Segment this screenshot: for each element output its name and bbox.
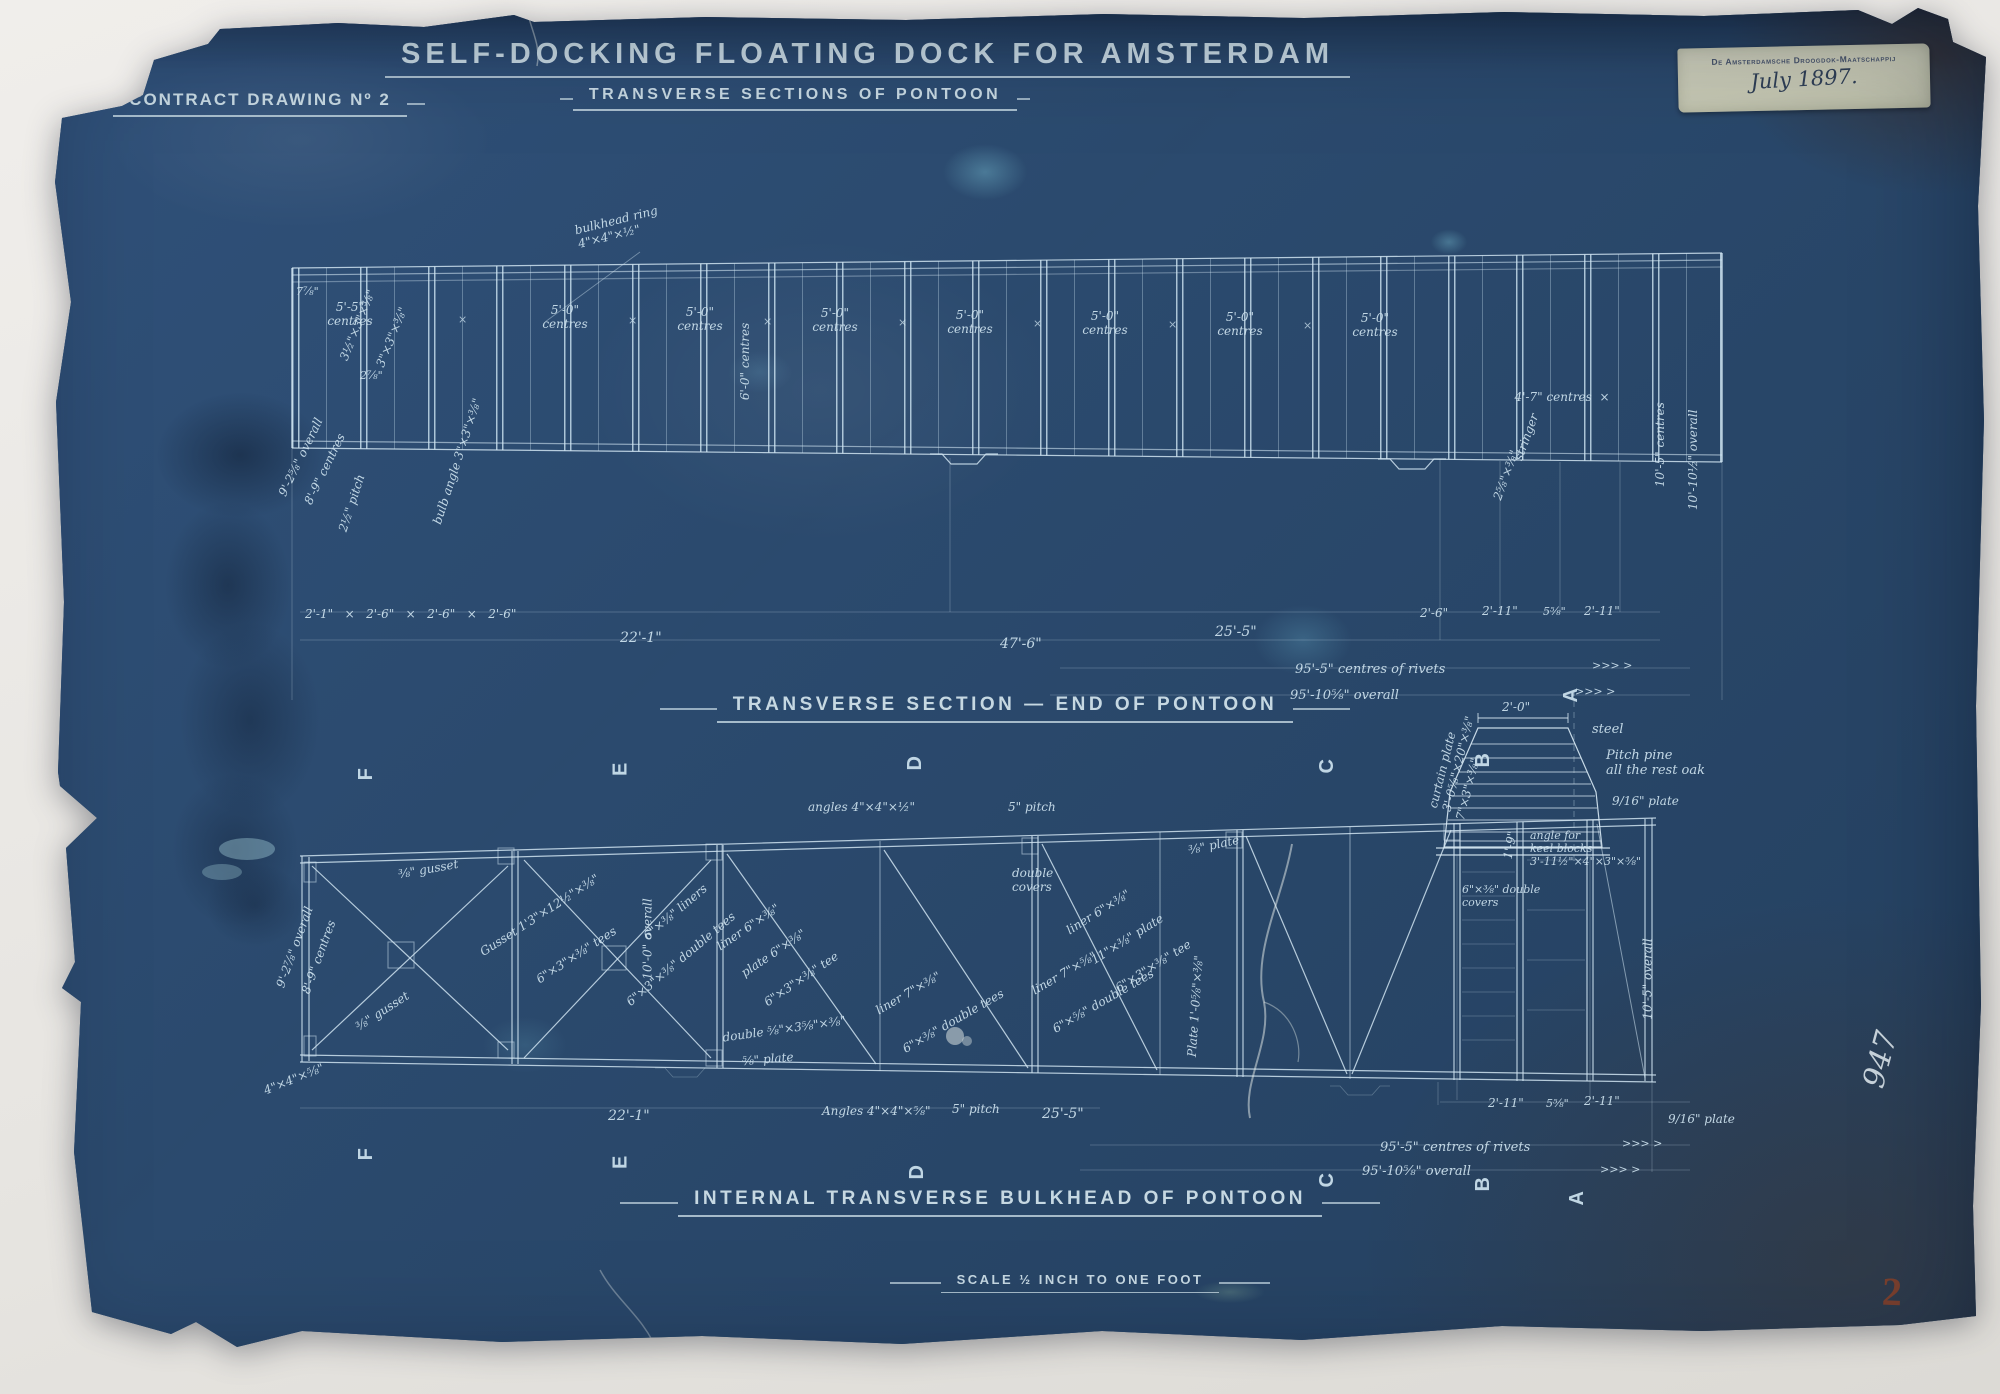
dim-row: 2'-1" × 2'-6" × 2'-6" × 2'-6" bbox=[305, 607, 516, 621]
dim-label: 25'-5" bbox=[1215, 624, 1257, 641]
dim-label: 2'-11" bbox=[1488, 1096, 1524, 1110]
rule-line bbox=[1017, 98, 1030, 100]
bay-spacing-label: 5'-0" centres bbox=[527, 303, 603, 331]
bay-spacing-label: 5'-0" centres bbox=[1067, 309, 1143, 337]
note-plate: Plate 1'-0⅝"×⅜" bbox=[1185, 937, 1207, 1058]
section-letter: E bbox=[609, 762, 633, 776]
photo-background: CONTRACT DRAWING Nº 2 SELF-DOCKING FLOAT… bbox=[0, 0, 2000, 1394]
note-plate: ⅜" plate bbox=[1187, 833, 1240, 858]
section-letter: C bbox=[1316, 758, 1340, 773]
bay-spacing-label: 5'-5" centres bbox=[312, 300, 388, 328]
note-tee: 6"×⅜" double tees bbox=[900, 986, 1006, 1055]
section-letter: C bbox=[1316, 1172, 1340, 1187]
note-liner: liner 7"×⅝" bbox=[1029, 949, 1099, 997]
stamp-number: 2 bbox=[1881, 1268, 1903, 1316]
archive-number: 947 bbox=[1856, 1027, 1905, 1091]
bay-spacing-label: 5'-0" centres bbox=[932, 308, 1008, 336]
note-dim: 1'-9" bbox=[1501, 830, 1520, 860]
note-liner: liner 6"×⅜" bbox=[714, 901, 782, 953]
note-plate: curtain plate 3'-0⅝"×20"×⅜" bbox=[1426, 699, 1480, 813]
arrow-marks: >>> > bbox=[1575, 686, 1615, 699]
drawing-subtitle: TRANSVERSE SECTIONS OF PONTOON bbox=[560, 86, 1030, 111]
bottom-section-heading-text: INTERNAL TRANSVERSE BULKHEAD OF PONTOON bbox=[678, 1188, 1322, 1217]
blueprint-sheet-wrap: CONTRACT DRAWING Nº 2 SELF-DOCKING FLOAT… bbox=[0, 0, 2000, 1394]
note-liner: liner 6"×⅜" bbox=[1064, 887, 1133, 937]
scale-note: SCALE ½ INCH TO ONE FOOT bbox=[890, 1272, 1270, 1293]
section-letter: A bbox=[1566, 1190, 1590, 1205]
note-angle: bulb angle 3"×3"×⅜" bbox=[430, 398, 484, 526]
cross-mark: × bbox=[1033, 318, 1042, 331]
note-angle: angles 4"×4"×½" bbox=[808, 800, 915, 814]
note-gusset: ⅜" gusset bbox=[353, 989, 412, 1034]
note-tee: 6"×⅝" double tees bbox=[1050, 966, 1156, 1035]
dim-label: 95'-5" centres of rivets bbox=[1380, 1140, 1530, 1155]
note-centres: 10'-5" centres bbox=[1653, 387, 1667, 487]
scale-note-text: SCALE ½ INCH TO ONE FOOT bbox=[941, 1272, 1220, 1293]
note-centres: 8'-9" centres bbox=[301, 431, 348, 507]
note-liner: 6"×⅜" liners bbox=[641, 881, 710, 942]
note-pitch: 2½" pitch bbox=[336, 473, 368, 534]
dim-label: 5" pitch bbox=[952, 1102, 1000, 1116]
cross-mark: × bbox=[898, 317, 907, 330]
contract-drawing-label: CONTRACT DRAWING Nº 2 bbox=[95, 90, 425, 117]
dim-label: Angles 4"×4"×⅝" bbox=[822, 1104, 931, 1118]
note-liner: liner 7"×⅜" bbox=[873, 969, 943, 1017]
cross-mark: × bbox=[628, 315, 637, 328]
bottom-section-heading: INTERNAL TRANSVERSE BULKHEAD OF PONTOON bbox=[620, 1188, 1380, 1217]
note-overall: 9'-2⅞" overall bbox=[273, 905, 315, 990]
section-letter: D bbox=[906, 1164, 930, 1179]
cross-mark: × bbox=[458, 314, 467, 327]
note-angle: 3"×3"×⅜" bbox=[373, 305, 410, 369]
note-bulkhead-ring: bulkhead ring 4"×4"×½" bbox=[573, 197, 687, 251]
section-letter: F bbox=[355, 767, 379, 780]
dim-label: 95'-10⅝" overall bbox=[1362, 1164, 1471, 1179]
rule-line bbox=[1219, 1282, 1270, 1284]
bay-spacing-label: 4'-7" centres × bbox=[1492, 390, 1632, 404]
dim-label: 5⅝" bbox=[1543, 606, 1566, 619]
dim-label: 2'-11" bbox=[1584, 1094, 1620, 1108]
dim-label: 47'-6" bbox=[1000, 636, 1042, 653]
rule-line bbox=[407, 103, 425, 105]
note-keel-angle: angle for keel blocks 3'-11½"×4"×3"×⅝" bbox=[1530, 830, 1641, 869]
section-letter: F bbox=[355, 1147, 379, 1160]
rule-line bbox=[890, 1282, 941, 1284]
note-overall: 9'-2⅝" overall bbox=[276, 416, 326, 499]
contract-drawing-text: CONTRACT DRAWING Nº 2 bbox=[113, 90, 407, 117]
note-angle: 3½"×3"×⅜" bbox=[337, 288, 378, 363]
note-overall: 10'-10½" overall bbox=[1686, 400, 1700, 510]
arrow-marks: >>> > bbox=[1592, 660, 1632, 673]
bay-spacing-label: 5'-0" centres bbox=[797, 306, 873, 334]
rule-line bbox=[560, 98, 573, 100]
note-dim: 7⅞" bbox=[296, 286, 319, 299]
section-letter: B bbox=[1472, 752, 1496, 767]
rule-line bbox=[95, 103, 113, 105]
dim-label: 2'-6" bbox=[1420, 606, 1448, 620]
note-plate: ⅝" plate bbox=[741, 1050, 794, 1069]
dim-label: 25'-5" bbox=[1042, 1106, 1084, 1123]
arrow-marks: >>> > bbox=[1622, 1138, 1662, 1151]
note-tee: 6"×3"×⅜" tees bbox=[534, 924, 619, 986]
note-tee: 6"×3"×⅜" double tees bbox=[624, 909, 739, 1008]
note-steel: steel bbox=[1592, 722, 1623, 737]
note-overall: 10'-5" overall bbox=[1640, 925, 1654, 1020]
note-stringer: stringer bbox=[1511, 412, 1541, 463]
note-covers: 6"×⅜" double covers bbox=[1462, 884, 1540, 910]
note-plate: plate 6"×⅜" bbox=[738, 926, 808, 980]
note-tee: 6"×3"×⅜" tee bbox=[1113, 937, 1194, 995]
section-letter: A bbox=[1560, 687, 1584, 702]
note-dim: double ⅝"×3⅝"×⅜" bbox=[722, 1013, 847, 1044]
archive-sticker: De Amsterdamsche Droogdok-Maatschappij J… bbox=[1677, 43, 1930, 112]
rule-line bbox=[1322, 1202, 1380, 1204]
section-letter: E bbox=[609, 1155, 633, 1169]
dim-label: 5⅝" bbox=[1546, 1098, 1569, 1111]
section-letter: B bbox=[1472, 1176, 1496, 1191]
note-timber: Pitch pine all the rest oak bbox=[1606, 748, 1705, 779]
drawing-title: SELF-DOCKING FLOATING DOCK FOR AMSTERDAM bbox=[385, 38, 1290, 78]
drawing-subtitle-text: TRANSVERSE SECTIONS OF PONTOON bbox=[573, 86, 1017, 111]
bay-spacing-label: 5'-0" centres bbox=[1202, 310, 1278, 338]
section-letter: D bbox=[904, 755, 928, 770]
note-covers: double covers bbox=[1012, 866, 1072, 894]
keel-block-width: 2'-0" bbox=[1502, 700, 1530, 714]
note-centres: 6'-0" centres bbox=[738, 320, 752, 400]
cross-mark: × bbox=[1168, 319, 1177, 332]
dim-label: 9/16" plate bbox=[1668, 1112, 1735, 1126]
rule-line bbox=[620, 1202, 678, 1204]
cross-mark: × bbox=[763, 316, 772, 329]
note-plate: 11"×⅜" plate bbox=[1089, 911, 1166, 967]
dim-label: 95'-5" centres of rivets bbox=[1295, 662, 1445, 677]
note-tee: 6"×3"×⅜" tee bbox=[761, 949, 841, 1009]
note-plate: 9/16" plate bbox=[1612, 794, 1679, 808]
note-dim: 2⅞" bbox=[360, 370, 383, 383]
note-centres: 8'-9" centres bbox=[299, 918, 339, 996]
drawing-title-text: SELF-DOCKING FLOATING DOCK FOR AMSTERDAM bbox=[385, 38, 1350, 78]
note-angle: 7"×3"×⅜" bbox=[1453, 757, 1482, 822]
rule-line bbox=[660, 708, 717, 710]
arrow-marks: >>> > bbox=[1600, 1164, 1640, 1177]
note-gusset: ⅜" gusset bbox=[397, 857, 459, 881]
dim-label: 2'-11" bbox=[1584, 604, 1620, 618]
dim-label: 2'-11" bbox=[1482, 604, 1518, 618]
dim-label: 22'-1" bbox=[608, 1108, 650, 1125]
note-overall: 10'-0" overall bbox=[640, 885, 654, 980]
cross-mark: × bbox=[1303, 320, 1312, 333]
middle-section-heading: TRANSVERSE SECTION — END OF PONTOON bbox=[660, 694, 1350, 723]
bay-spacing-label: 5'-0" centres bbox=[662, 305, 738, 333]
bay-spacing-label: 5'-0" centres bbox=[1337, 311, 1413, 339]
dim-label: 22'-1" bbox=[620, 630, 662, 647]
middle-section-heading-text: TRANSVERSE SECTION — END OF PONTOON bbox=[717, 694, 1293, 723]
pontoon-frame-band bbox=[292, 253, 1722, 465]
note-gusset: Gusset 1'3"×12½"×⅜" bbox=[477, 871, 601, 959]
blueprint-sheet: CONTRACT DRAWING Nº 2 SELF-DOCKING FLOAT… bbox=[0, 0, 2000, 1394]
note-angle: 4"×4"×⅝" bbox=[262, 1061, 326, 1098]
note-pitch: 5" pitch bbox=[1008, 800, 1056, 814]
rule-line bbox=[1293, 708, 1350, 710]
note-dim: 2⅝"×⅜" bbox=[1490, 448, 1521, 502]
